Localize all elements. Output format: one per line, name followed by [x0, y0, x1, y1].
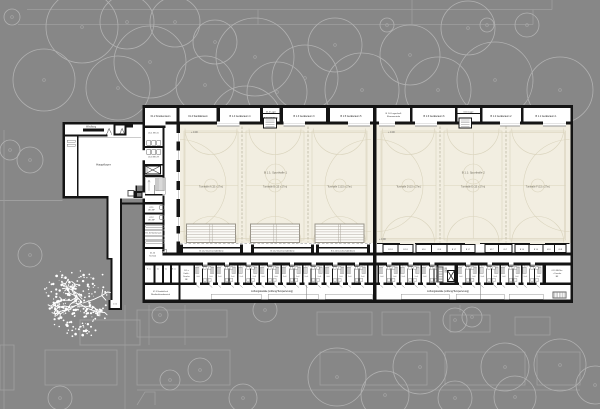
svg-text:B 1.1: B 1.1 [197, 266, 201, 268]
svg-text:B 1.1: B 1.1 [305, 266, 309, 268]
svg-text:01.6: 01.6 [422, 249, 426, 251]
svg-text:B 1.1: B 1.1 [481, 266, 485, 268]
svg-text:Umkl.: Umkl. [494, 276, 498, 278]
svg-text:B 1.5 Geräteraum 5: B 1.5 Geräteraum 5 [341, 115, 363, 118]
svg-text:Umkl.: Umkl. [296, 276, 300, 278]
svg-text:1.056: 1.056 [210, 265, 214, 267]
svg-text:Umkl.: Umkl. [274, 276, 278, 278]
svg-text:1.056: 1.056 [516, 265, 520, 267]
svg-text:Turnhalle D (15 x 27m): Turnhalle D (15 x 27m) [396, 186, 421, 189]
svg-text:01.10: 01.10 [150, 253, 156, 255]
svg-text:Umkl.: Umkl. [393, 276, 397, 278]
svg-text:Turnhalle A (15 x 27m): Turnhalle A (15 x 27m) [199, 186, 223, 189]
svg-text:B 1.8: B 1.8 [388, 249, 392, 251]
svg-text:B 1.12 Durchschubtribüne: B 1.12 Durchschubtribüne [331, 249, 356, 252]
svg-text:B 1.10 Sanitärraum: B 1.10 Sanitärraum [145, 231, 162, 234]
svg-text:B 1.4: B 1.4 [534, 249, 538, 251]
svg-text:B 1.1: B 1.1 [402, 266, 406, 268]
svg-text:Umkl.: Umkl. [305, 276, 309, 278]
svg-text:01.8: 01.8 [547, 249, 551, 251]
svg-text:WC BF: WC BF [148, 209, 155, 211]
svg-text:B 1.2 Geräteraum 2: B 1.2 Geräteraum 2 [491, 115, 513, 118]
svg-text:B 1.1: B 1.1 [327, 266, 331, 268]
svg-text:Umkl +: Umkl + [184, 273, 191, 275]
svg-text:B 1.1 Geräteraum 1: B 1.1 Geräteraum 1 [536, 115, 558, 118]
svg-text:Umkl.: Umkl. [459, 276, 463, 278]
svg-text:Turnhalle F (15 x 27m): Turnhalle F (15 x 27m) [526, 186, 550, 189]
svg-text:Umkl.: Umkl. [240, 276, 244, 278]
svg-text:B 1.1: B 1.1 [423, 266, 427, 268]
svg-text:+ 0.00: + 0.00 [191, 131, 198, 134]
svg-text:1.056: 1.056 [231, 265, 235, 267]
svg-text:B 1.6 Lager/auß: B 1.6 Lager/auß [386, 112, 402, 115]
svg-text:B 1.1: B 1.1 [380, 266, 384, 268]
svg-text:Umkl.: Umkl. [402, 276, 406, 278]
svg-text:Dusche: Dusche [183, 276, 189, 278]
svg-text:1.056: 1.056 [494, 265, 498, 267]
svg-text:Umkl.: Umkl. [502, 276, 506, 278]
svg-text:B 1.1: B 1.1 [524, 266, 528, 268]
svg-text:B 1.1: B 1.1 [240, 266, 244, 268]
svg-text:Lüftungskanäle (Lüftung/Temper: Lüftungskanäle (Lüftung/Temperierung) [427, 290, 469, 293]
svg-text:B 1.1: B 1.1 [262, 266, 266, 268]
svg-text:01.9 BF/Um: 01.9 BF/Um [552, 270, 563, 272]
svg-text:Umkl.: Umkl. [423, 276, 427, 278]
svg-text:01.3 WC H: 01.3 WC H [148, 156, 159, 158]
svg-text:1.056: 1.056 [537, 265, 541, 267]
svg-text:1.056: 1.056 [296, 265, 300, 267]
svg-text:+ Dusche: + Dusche [553, 273, 562, 275]
svg-text:B 1.x: B 1.x [147, 269, 151, 271]
svg-text:01.7: 01.7 [490, 249, 494, 251]
svg-text:Umkl.: Umkl. [361, 276, 365, 278]
svg-text:Umkl.: Umkl. [524, 276, 528, 278]
svg-text:1.056: 1.056 [361, 265, 365, 267]
svg-text:1.056: 1.056 [253, 265, 257, 267]
svg-text:B 1.4 Geräteraum 4: B 1.4 Geräteraum 4 [230, 115, 252, 118]
svg-text:B 1.7: B 1.7 [452, 249, 456, 251]
svg-text:Umkl.: Umkl. [472, 276, 476, 278]
svg-text:Lüftungskanäle (Lüftung/Temper: Lüftungskanäle (Lüftung/Temperierung) [251, 290, 293, 293]
svg-text:B 1.1: B 1.1 [502, 266, 506, 268]
svg-text:Umkl.: Umkl. [209, 276, 213, 278]
svg-text:+ 0.00: + 0.00 [388, 131, 395, 134]
svg-text:01.6: 01.6 [438, 249, 442, 251]
svg-text:01.4 Sanitätsraum: 01.4 Sanitätsraum [188, 115, 207, 118]
svg-text:Umkl.: Umkl. [318, 276, 322, 278]
svg-text:B 1.6 Geräteraum 6: B 1.6 Geräteraum 6 [424, 115, 446, 118]
svg-text:01.1 WC D: 01.1 WC D [148, 133, 159, 135]
svg-text:Hauptfoyer: Hauptfoyer [96, 163, 111, 167]
svg-text:07.4 Sanität/tech: 07.4 Sanität/tech [153, 290, 168, 293]
svg-text:Westfunktionsbereich: Westfunktionsbereich [151, 293, 170, 296]
svg-text:1.056: 1.056 [275, 265, 279, 267]
svg-text:Umkl.: Umkl. [339, 276, 343, 278]
svg-text:Umkl.: Umkl. [196, 276, 200, 278]
svg-text:01.2 Krankenraum: 01.2 Krankenraum [151, 115, 171, 118]
svg-text:B 1.3 Geräteraum 3: B 1.3 Geräteraum 3 [294, 115, 316, 118]
svg-text:B 1.8: B 1.8 [403, 249, 407, 251]
svg-text:B 1.1: B 1.1 [218, 266, 222, 268]
svg-text:B 1.1: Sporthalle 2: B 1.1: Sporthalle 2 [462, 171, 485, 175]
svg-text:Umkl.: Umkl. [261, 276, 265, 278]
svg-text:Umkl.: Umkl. [481, 276, 485, 278]
svg-text:Umkl.: Umkl. [218, 276, 222, 278]
svg-text:B 1.12 Durchschubtribüne: B 1.12 Durchschubtribüne [270, 249, 295, 252]
svg-text:1.056: 1.056 [318, 265, 322, 267]
svg-text:Umkl.: Umkl. [326, 276, 330, 278]
svg-text:B 1.1: B 1.1 [283, 266, 287, 268]
svg-text:1.056: 1.056 [340, 265, 344, 267]
svg-text:01.8: 01.8 [559, 249, 563, 251]
svg-text:B 1.7: B 1.7 [466, 249, 470, 251]
svg-text:B 1.x: B 1.x [172, 269, 176, 271]
svg-text:B 1.1: Sporthalle 1: B 1.1: Sporthalle 1 [264, 171, 287, 175]
svg-text:Umkl.: Umkl. [231, 276, 235, 278]
svg-text:Umkl.: Umkl. [537, 276, 541, 278]
svg-text:B 1.12 Durchschubtribüne: B 1.12 Durchschubtribüne [199, 249, 224, 252]
svg-text:B 1.4: B 1.4 [520, 249, 524, 251]
svg-text:1.056: 1.056 [394, 265, 398, 267]
svg-text:WC BF: WC BF [148, 219, 155, 221]
svg-text:Turnhalle E (15 x 27m): Turnhalle E (15 x 27m) [461, 186, 485, 189]
svg-text:Technik: Technik [149, 256, 156, 258]
svg-text:01.7: 01.7 [504, 249, 508, 251]
svg-text:1.056: 1.056 [473, 265, 477, 267]
svg-text:Klimazentrale: Klimazentrale [387, 115, 401, 118]
svg-text:+ 0.00: + 0.00 [379, 238, 386, 241]
svg-text:Umkl.: Umkl. [253, 276, 257, 278]
svg-text:Umkl.: Umkl. [380, 276, 384, 278]
svg-text:1.056: 1.056 [415, 265, 419, 267]
svg-text:Umkl.: Umkl. [348, 276, 352, 278]
svg-text:B 1.1: B 1.1 [348, 266, 352, 268]
svg-text:Windfang: Windfang [86, 126, 97, 129]
svg-text:Umkl.: Umkl. [283, 276, 287, 278]
svg-text:B 1.x: B 1.x [184, 270, 188, 272]
svg-text:Umkl.: Umkl. [515, 276, 519, 278]
svg-text:B 1.1: B 1.1 [459, 266, 463, 268]
svg-text:Umkl.: Umkl. [415, 276, 419, 278]
svg-text:Turnhalle C (15 x 27m): Turnhalle C (15 x 27m) [327, 186, 352, 189]
svg-text:Turnhalle B (15 x 27m): Turnhalle B (15 x 27m) [263, 186, 287, 189]
